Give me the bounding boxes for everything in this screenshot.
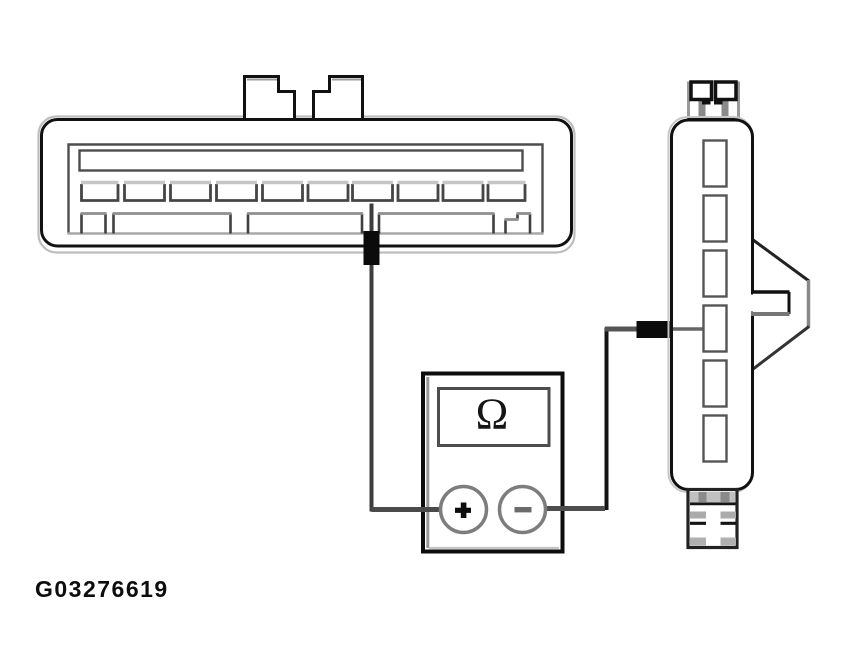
svg-text:Ω: Ω: [476, 390, 509, 439]
